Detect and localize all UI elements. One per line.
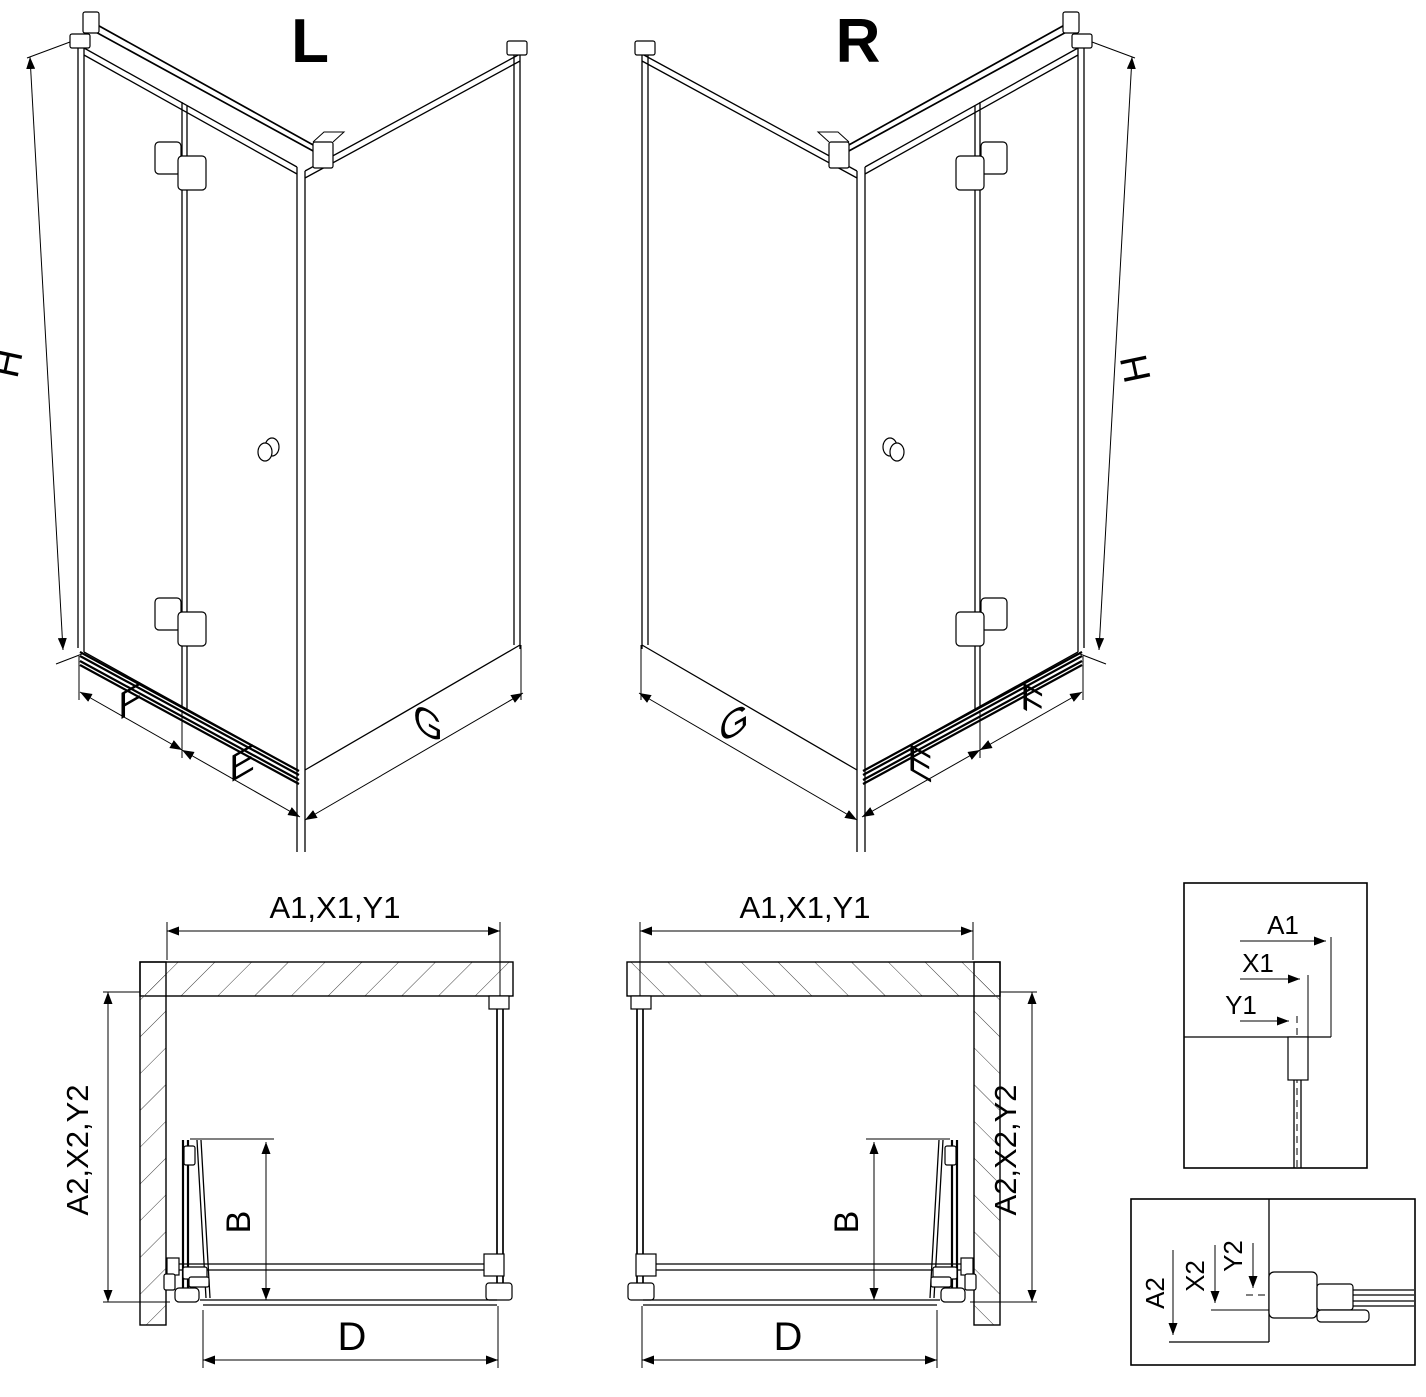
label-detail-x1: X1 xyxy=(1242,948,1274,978)
detail-profile-insert xyxy=(1317,1284,1353,1310)
label-detail-a2: A2 xyxy=(1140,1277,1170,1309)
detail-profile-bracket xyxy=(1317,1310,1369,1322)
technical-drawing-page: L R H H F E G G E F A1,X1,Y1 A1,X1,Y1 A2… xyxy=(0,0,1426,1397)
detail-wall-profile-bottom xyxy=(1269,1272,1317,1318)
label-f-right: F xyxy=(1020,673,1043,729)
label-height-right: H xyxy=(1113,351,1160,387)
label-fold-depth-left: B xyxy=(220,1211,258,1234)
detail-box-bottom: A2 X2 Y2 xyxy=(1131,1199,1415,1365)
label-f-left: F xyxy=(118,673,141,729)
detail-box-top: A1 X1 Y1 xyxy=(1184,883,1367,1168)
label-detail-a1: A1 xyxy=(1267,910,1299,940)
plan-view-right xyxy=(627,922,1037,1368)
label-left-version: L xyxy=(291,7,329,76)
detail-glass-bottom xyxy=(1353,1290,1414,1306)
detail-wall-profile-top xyxy=(1288,1037,1308,1080)
label-side-depth-left: A2,X2,Y2 xyxy=(60,1085,95,1216)
label-fold-depth-right: B xyxy=(828,1211,866,1234)
label-g-left: G xyxy=(413,693,443,753)
label-side-depth-right: A2,X2,Y2 xyxy=(988,1085,1023,1216)
label-detail-y2: Y2 xyxy=(1218,1240,1248,1272)
label-entry-width-right: D xyxy=(774,1315,803,1359)
iso-view-right xyxy=(635,12,1135,852)
label-top-width-right: A1,X1,Y1 xyxy=(740,890,871,925)
label-detail-x2: X2 xyxy=(1180,1260,1210,1292)
label-entry-width-left: D xyxy=(338,1315,367,1359)
label-detail-y1: Y1 xyxy=(1225,990,1257,1020)
label-top-width-left: A1,X1,Y1 xyxy=(270,890,401,925)
label-right-version: R xyxy=(836,7,881,76)
shower-enclosure-diagram: L R H H F E G G E F A1,X1,Y1 A1,X1,Y1 A2… xyxy=(0,0,1426,1397)
iso-view-left xyxy=(27,12,527,852)
label-g-right: G xyxy=(719,693,749,753)
label-height-left: H xyxy=(0,346,32,382)
plan-view-left xyxy=(103,922,513,1368)
